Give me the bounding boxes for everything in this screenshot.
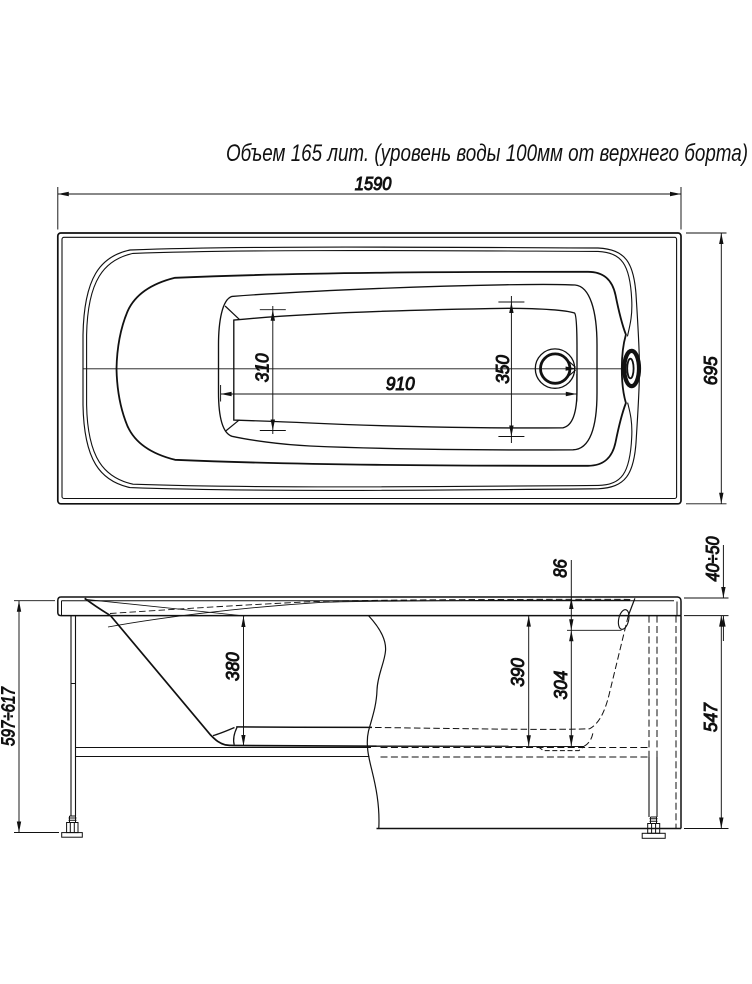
svg-text:86: 86 (551, 558, 571, 577)
svg-text:390: 390 (508, 658, 528, 687)
svg-text:380: 380 (223, 652, 243, 681)
svg-text:304: 304 (551, 671, 571, 700)
svg-text:695: 695 (701, 355, 721, 385)
svg-text:1590: 1590 (355, 174, 392, 194)
svg-text:40÷50: 40÷50 (703, 537, 723, 582)
svg-text:910: 910 (386, 374, 415, 394)
svg-text:547: 547 (701, 702, 721, 732)
svg-text:597÷617: 597÷617 (0, 686, 19, 746)
svg-text:310: 310 (252, 353, 272, 382)
svg-text:350: 350 (493, 355, 513, 384)
svg-text:Объем 165 лит. (уровень воды 1: Объем 165 лит. (уровень воды 100мм от ве… (226, 140, 748, 167)
